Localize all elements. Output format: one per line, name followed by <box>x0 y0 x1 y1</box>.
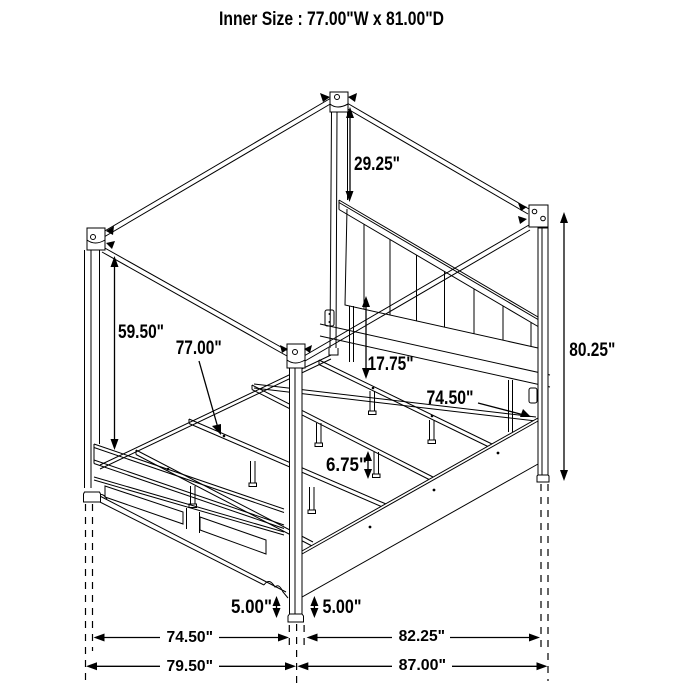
svg-text:5.00": 5.00" <box>231 597 272 618</box>
svg-text:29.25": 29.25" <box>354 154 400 175</box>
svg-text:87.00": 87.00" <box>399 657 447 674</box>
svg-text:79.50": 79.50" <box>167 658 214 675</box>
svg-text:77.00": 77.00" <box>176 338 222 359</box>
svg-text:59.50": 59.50" <box>118 322 164 343</box>
svg-text:6.75": 6.75" <box>326 455 367 476</box>
svg-text:74.50": 74.50" <box>167 629 214 646</box>
svg-text:80.25": 80.25" <box>569 340 615 361</box>
svg-text:74.50": 74.50" <box>427 388 474 409</box>
svg-text:82.25": 82.25" <box>399 628 446 645</box>
svg-text:5.00": 5.00" <box>323 597 362 618</box>
svg-text:Inner Size : 77.00"W x 81.00"D: Inner Size : 77.00"W x 81.00"D <box>219 9 444 30</box>
svg-text:17.75": 17.75" <box>368 354 414 375</box>
